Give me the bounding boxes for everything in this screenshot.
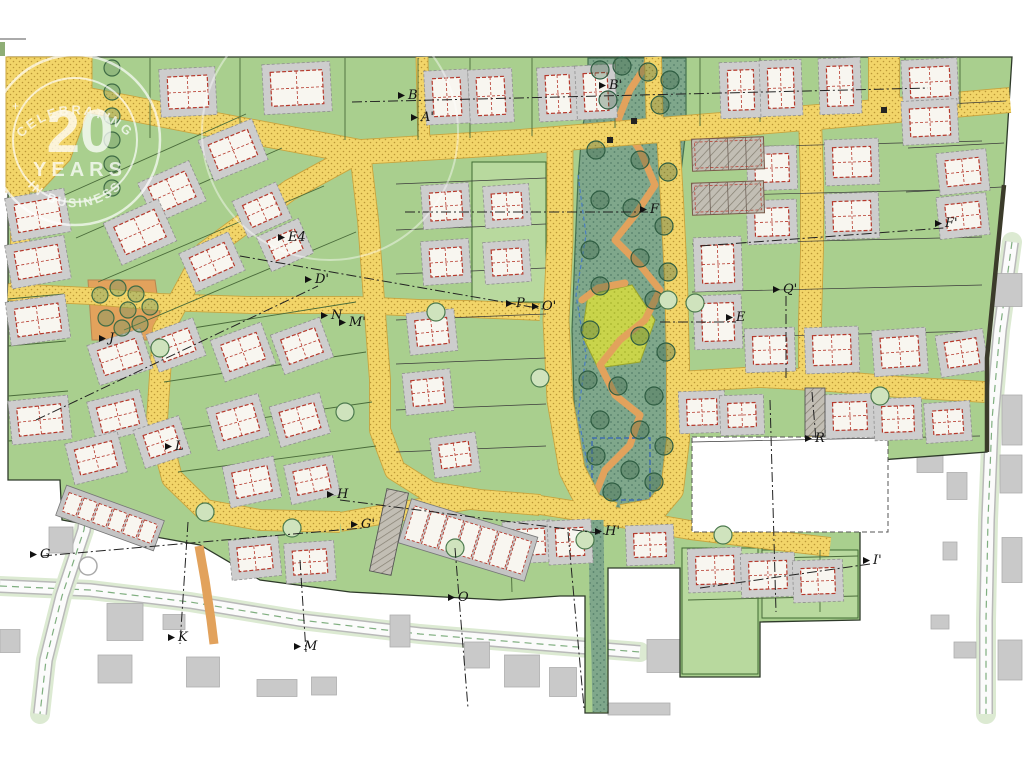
building-lot <box>402 369 454 416</box>
tree-symbol <box>576 531 594 549</box>
tree-symbol <box>283 519 301 537</box>
section-marker-label: M' <box>348 315 366 330</box>
existing-building <box>954 642 976 658</box>
existing-building <box>312 677 337 695</box>
existing-building <box>0 630 20 653</box>
tree-symbol <box>599 91 617 109</box>
building-lot <box>824 138 880 186</box>
building-lot <box>284 540 337 583</box>
tree-symbol <box>631 327 649 345</box>
section-marker-label: A' <box>420 110 434 125</box>
tree-symbol <box>114 320 130 336</box>
section-marker: K <box>168 630 189 645</box>
building-lot <box>936 149 990 196</box>
existing-building <box>257 680 297 697</box>
tree-symbol <box>98 310 114 326</box>
building-lot <box>429 432 480 478</box>
tree-symbol <box>639 63 657 81</box>
section-marker-label: F <box>649 202 660 217</box>
building-lot <box>228 535 282 580</box>
tree-symbol <box>110 280 126 296</box>
watermark-cross: + <box>12 99 19 113</box>
tree-symbol <box>92 287 108 303</box>
building-lot <box>262 61 333 114</box>
apartment-block <box>691 137 764 171</box>
tree-symbol <box>714 526 732 544</box>
existing-building <box>1002 395 1022 445</box>
tree-symbol <box>591 411 609 429</box>
building-lot <box>625 524 674 566</box>
tree-symbol <box>196 503 214 521</box>
section-marker-label: Q' <box>783 282 797 297</box>
section-marker-label: I' <box>872 553 882 568</box>
tree-symbol <box>603 483 621 501</box>
building-lot <box>719 394 764 436</box>
tree-symbol <box>651 96 669 114</box>
building-footprint <box>476 76 506 115</box>
existing-building <box>608 703 670 715</box>
tree-symbol <box>427 303 445 321</box>
existing-building <box>550 668 577 697</box>
building-lot <box>719 61 763 118</box>
existing-building <box>505 655 540 687</box>
tree-symbol <box>336 403 354 421</box>
building-lot <box>818 57 862 114</box>
building-lot <box>792 559 843 603</box>
existing-building <box>947 473 967 500</box>
section-marker-label: G <box>40 547 50 562</box>
tree-symbol <box>591 277 609 295</box>
building-lot <box>824 393 876 439</box>
section-marker-arrow-icon <box>168 634 175 641</box>
watermark-number: 20 <box>47 98 114 165</box>
building-lot <box>740 552 796 598</box>
section-marker-arrow-icon <box>863 557 870 564</box>
building-lot <box>537 66 580 122</box>
tree-symbol <box>120 302 136 318</box>
site-plan-page: BA'B'E4D'NM'JFF'Q'EPO'RLHGG'H'OKMI' CELE… <box>0 0 1024 768</box>
building-lot <box>483 239 532 284</box>
section-marker-label: M <box>303 639 318 654</box>
existing-building <box>998 640 1022 680</box>
tree-symbol <box>623 199 641 217</box>
tree-symbol <box>579 371 597 389</box>
tree-symbol <box>581 321 599 339</box>
tree-symbol <box>686 294 704 312</box>
tree-symbol <box>151 339 169 357</box>
building-lot <box>687 547 743 593</box>
existing-building <box>1000 455 1022 493</box>
tree-symbol <box>631 249 649 267</box>
building-footprint <box>696 555 735 584</box>
apartment-block <box>691 181 764 215</box>
section-marker: M <box>294 639 318 654</box>
tree-symbol <box>661 71 679 89</box>
roundabout <box>79 557 97 575</box>
tree-symbol <box>142 299 158 315</box>
sheet-edge-fleck <box>0 42 5 56</box>
tree-symbol <box>871 387 889 405</box>
building-footprint <box>749 560 788 589</box>
building-lot <box>759 59 803 116</box>
section-marker-label: H' <box>604 524 620 539</box>
existing-building <box>49 527 73 553</box>
section-marker-arrow-icon <box>30 551 37 558</box>
tree-symbol <box>645 473 663 491</box>
section-marker-label: D' <box>314 272 329 287</box>
tree-symbol <box>587 447 605 465</box>
tree-symbol <box>531 369 549 387</box>
building-lot <box>935 329 989 378</box>
tree-symbol <box>128 286 144 302</box>
section-marker-label: B' <box>608 78 622 93</box>
building-lot <box>5 294 71 346</box>
tree-symbol <box>659 263 677 281</box>
building-lot <box>804 326 860 374</box>
section-marker-label: L <box>174 439 184 454</box>
building-lot <box>678 390 725 434</box>
tree-symbol <box>657 343 675 361</box>
section-marker: I' <box>863 553 882 568</box>
building-lot <box>8 395 72 445</box>
section-marker-label: R <box>814 431 825 446</box>
tree-symbol <box>655 437 673 455</box>
section-marker-label: F' <box>944 216 958 231</box>
existing-building <box>1002 538 1022 583</box>
existing-building <box>98 655 132 683</box>
building-lot <box>901 99 959 146</box>
tree-symbol <box>621 461 639 479</box>
tree-symbol <box>609 377 627 395</box>
section-marker-arrow-icon <box>294 643 301 650</box>
tree-symbol <box>587 141 605 159</box>
site-plan-map: BA'B'E4D'NM'JFF'Q'EPO'RLHGG'H'OKMI' CELE… <box>0 0 1024 768</box>
section-marker-label: G' <box>361 517 375 532</box>
building-lot <box>744 327 796 373</box>
watermark-word: YEARS <box>33 159 127 181</box>
tree-symbol <box>613 57 631 75</box>
existing-building <box>187 657 220 687</box>
existing-building <box>931 615 949 629</box>
section-marker-label: E <box>735 310 746 325</box>
tree-symbol <box>581 241 599 259</box>
green-footpath <box>596 520 600 712</box>
utility-symbol <box>631 118 637 124</box>
building-lot <box>483 183 532 228</box>
existing-building <box>647 640 683 673</box>
building-footprint <box>432 77 462 116</box>
section-marker-label: B <box>407 88 418 103</box>
existing-building <box>107 604 143 641</box>
tree-symbol <box>645 387 663 405</box>
utility-symbol <box>607 137 613 143</box>
section-marker-label: K <box>177 630 189 645</box>
section-marker: G <box>30 547 50 562</box>
tree-symbol <box>655 217 673 235</box>
section-marker-label: O' <box>542 299 556 314</box>
tree-symbol <box>132 316 148 332</box>
tree-symbol <box>659 163 677 181</box>
existing-building <box>390 615 410 647</box>
existing-building <box>943 542 957 560</box>
existing-building <box>465 642 490 668</box>
section-marker-label: H <box>336 487 349 502</box>
section-marker-label: P <box>515 296 525 311</box>
tree-symbol <box>631 421 649 439</box>
building-lot <box>871 327 928 377</box>
building-lot <box>421 238 472 285</box>
section-marker-label: O <box>458 590 469 605</box>
tree-symbol <box>591 61 609 79</box>
building-lot <box>824 192 880 240</box>
building-lot <box>924 400 973 443</box>
building-lot <box>421 182 472 229</box>
excluded-parcel <box>692 437 888 532</box>
section-marker-label: E4 <box>287 230 306 245</box>
tree-symbol <box>631 151 649 169</box>
utility-symbol <box>881 107 887 113</box>
tree-symbol <box>659 291 677 309</box>
building-lot <box>468 68 515 124</box>
tree-symbol <box>591 191 609 209</box>
